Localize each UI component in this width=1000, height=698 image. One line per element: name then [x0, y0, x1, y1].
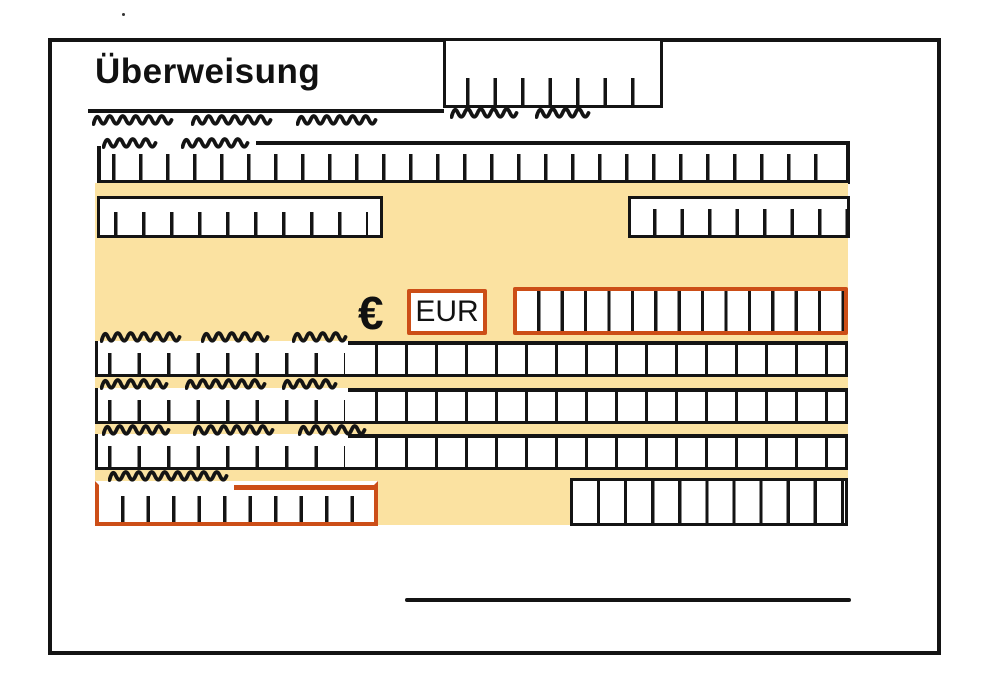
cell-dividers [348, 388, 845, 421]
cell-dividers [348, 341, 845, 374]
row-topline [234, 485, 374, 490]
character-ticks [112, 154, 836, 181]
long-field-right-edge [846, 142, 850, 183]
scribble-label [92, 111, 391, 132]
amount-field[interactable] [513, 287, 848, 335]
long-field-left-edge [97, 146, 101, 183]
bottom-right-char-field[interactable] [570, 478, 848, 526]
field-topline [256, 141, 850, 145]
right-char-field[interactable] [628, 196, 850, 238]
scribble-label [100, 328, 363, 349]
header-code-field[interactable] [443, 38, 663, 108]
left-char-field[interactable] [97, 196, 383, 238]
scribble-label [102, 134, 268, 155]
scribble-label [108, 467, 249, 488]
scribble-label [100, 375, 357, 396]
character-ticks [108, 446, 345, 467]
scribble-label [102, 421, 383, 442]
ink-speck [122, 13, 125, 16]
transfer-form-illustration: Überweisung € EUR [0, 0, 1000, 698]
character-ticks [653, 209, 849, 235]
character-ticks [108, 400, 345, 421]
currency-code-label: EUR [415, 295, 478, 329]
form-title: Überweisung [95, 52, 320, 92]
character-ticks [114, 212, 368, 235]
cell-dividers [573, 481, 845, 523]
currency-code-box: EUR [407, 289, 487, 335]
signature-line[interactable] [405, 598, 851, 602]
scribble-label [450, 104, 614, 125]
cell-dividers [348, 434, 845, 467]
character-ticks [466, 78, 656, 105]
character-ticks [121, 496, 366, 522]
cell-dividers [517, 291, 844, 331]
character-ticks [108, 353, 345, 374]
